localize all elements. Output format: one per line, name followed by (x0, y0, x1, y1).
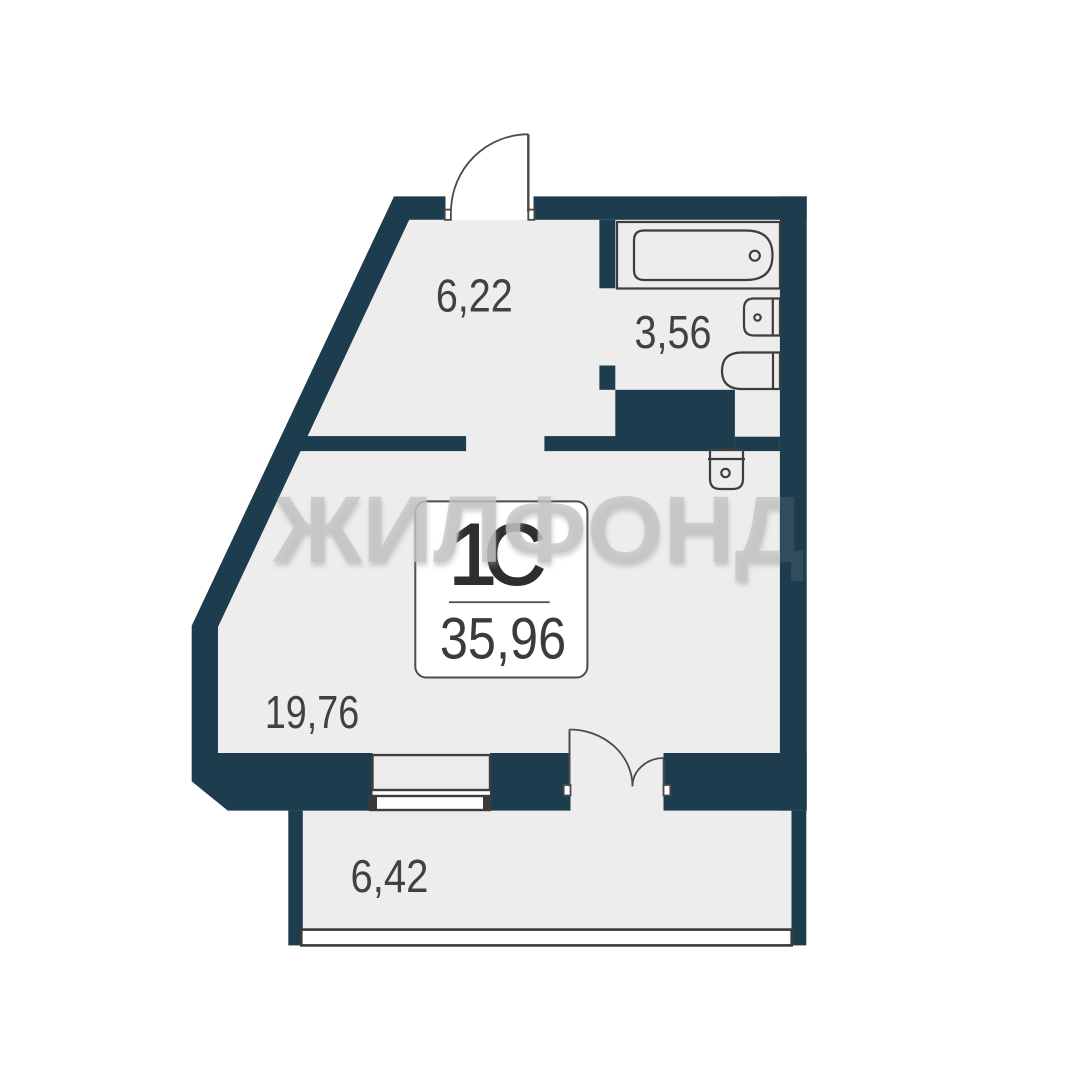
svg-text:ЖИЛФОНД: ЖИЛФОНД (272, 477, 805, 583)
svg-text:6,22: 6,22 (436, 271, 513, 322)
svg-text:6,42: 6,42 (350, 851, 428, 902)
svg-text:35,96: 35,96 (440, 606, 566, 671)
svg-text:3,56: 3,56 (635, 307, 712, 358)
svg-text:19,76: 19,76 (265, 686, 359, 737)
